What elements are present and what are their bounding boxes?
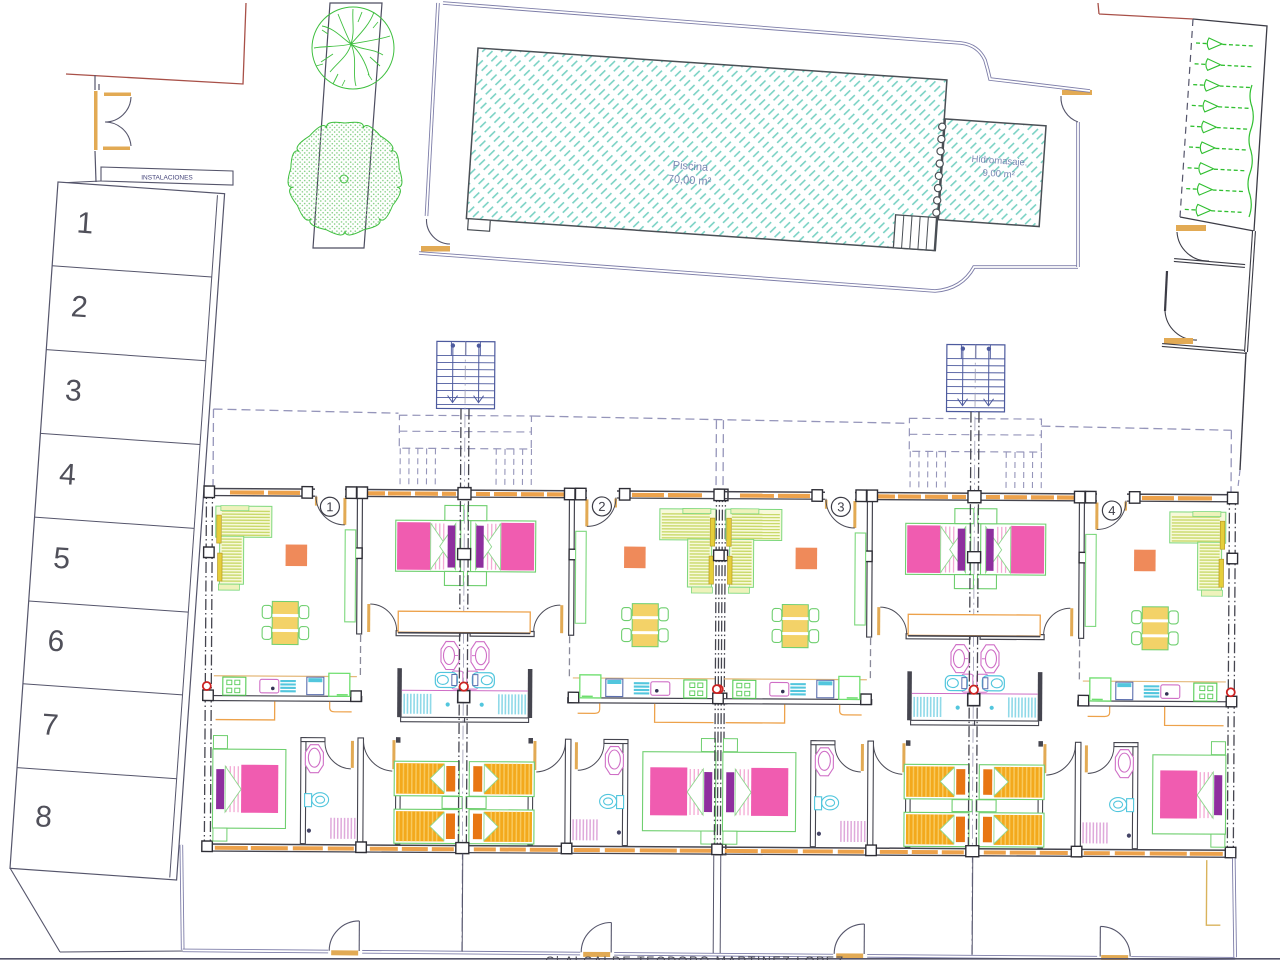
svg-text:2: 2: [598, 499, 605, 514]
svg-text:Piscina: Piscina: [672, 160, 709, 174]
svg-text:INSTALACIONES: INSTALACIONES: [141, 175, 193, 182]
svg-text:C| ALCALDE TEODORO MARTINEZ: C| ALCALDE TEODORO MARTINEZ LOPEZ: [545, 955, 845, 960]
svg-text:3: 3: [64, 374, 83, 408]
svg-text:1: 1: [326, 499, 333, 514]
svg-text:7: 7: [41, 708, 60, 742]
svg-text:2: 2: [70, 290, 89, 324]
svg-text:4: 4: [1108, 503, 1115, 518]
svg-text:1: 1: [76, 206, 95, 240]
svg-text:6: 6: [46, 624, 65, 658]
svg-text:3: 3: [837, 499, 844, 514]
svg-text:5: 5: [52, 542, 71, 576]
svg-text:8: 8: [34, 800, 53, 834]
svg-text:4: 4: [58, 458, 77, 492]
svg-text:9,00 m²: 9,00 m²: [982, 168, 1015, 181]
